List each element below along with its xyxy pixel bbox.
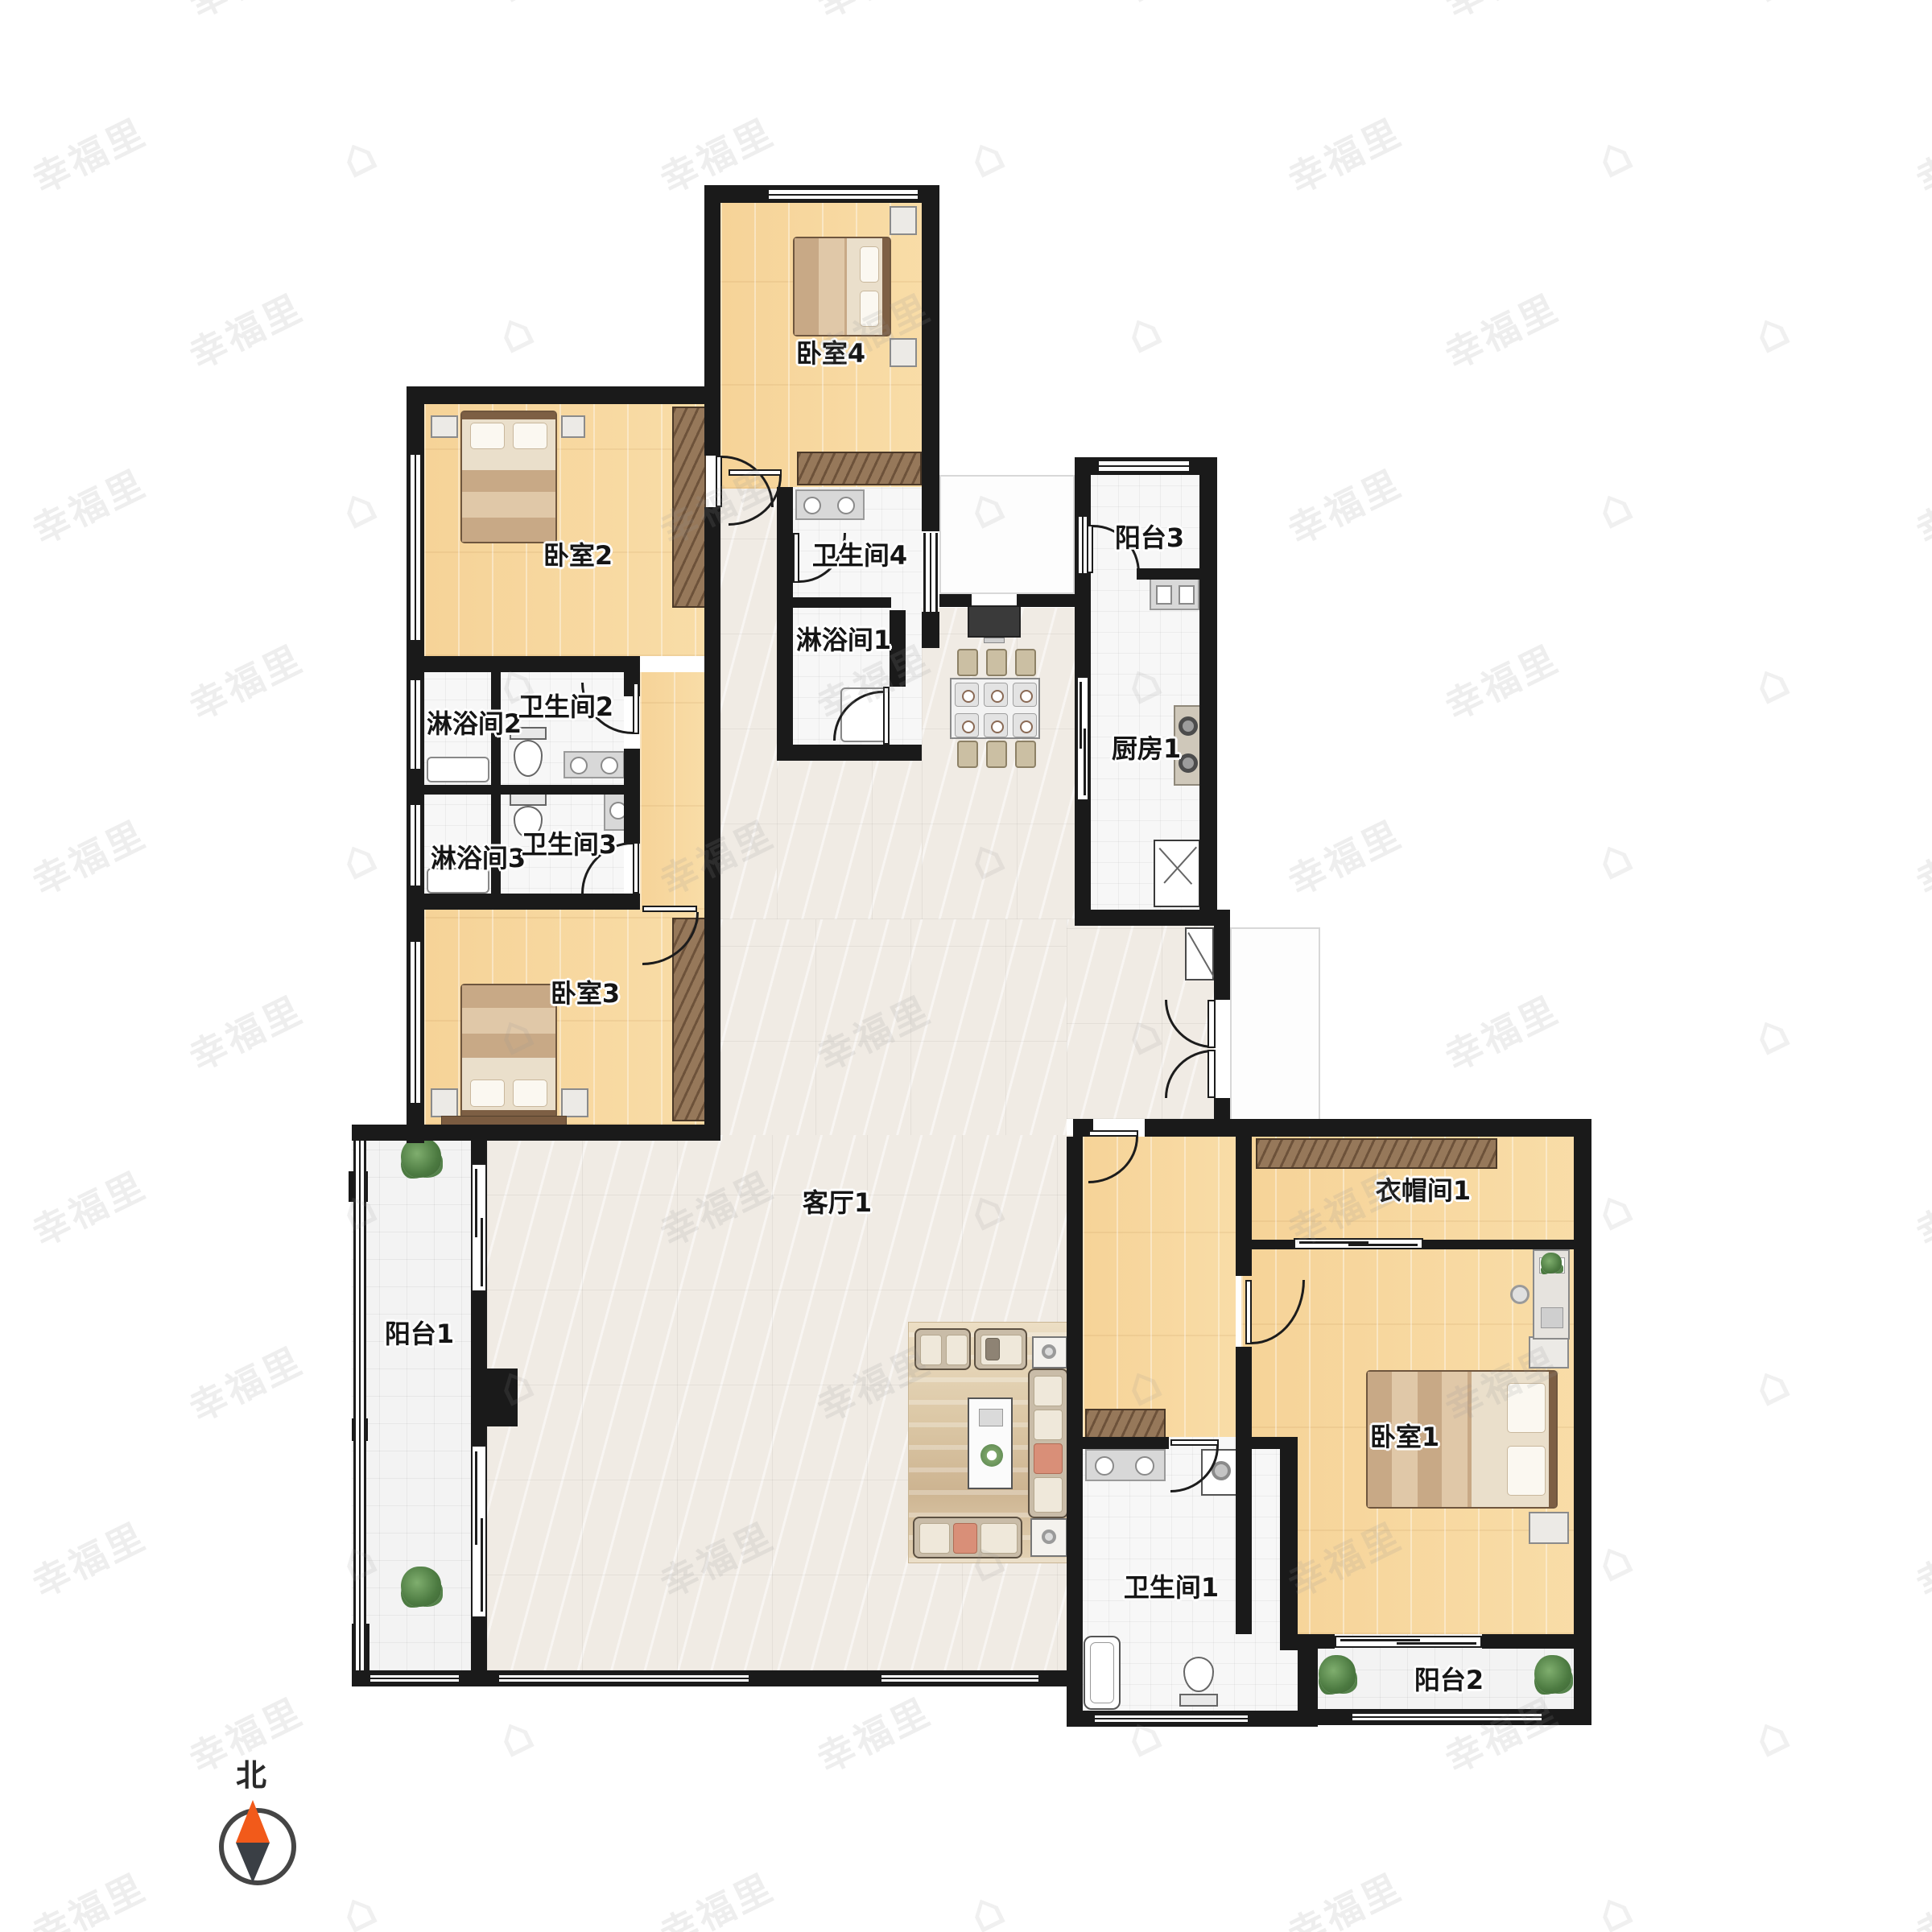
cushion	[1034, 1477, 1063, 1513]
toilet-bowl	[514, 740, 543, 777]
toilet-bowl	[1183, 1657, 1214, 1692]
burner	[1179, 753, 1198, 773]
pillow	[470, 1080, 505, 1107]
sink-basin	[570, 757, 588, 774]
sink-basin	[1156, 585, 1172, 605]
place-setting	[984, 683, 1008, 707]
wall	[1067, 1437, 1083, 1727]
wall	[777, 487, 793, 761]
kitchen-sink	[1150, 578, 1199, 610]
floor-living	[720, 919, 1067, 1137]
tv-icon	[968, 605, 1021, 638]
place-setting	[955, 713, 979, 737]
wall	[890, 610, 906, 687]
compass-needle-south-icon	[236, 1843, 270, 1883]
wall	[1574, 1652, 1591, 1725]
door-bathroom3	[633, 842, 639, 894]
place-setting	[955, 683, 979, 707]
pillow	[860, 291, 879, 327]
pillow	[513, 423, 547, 449]
pillow	[1507, 1446, 1546, 1496]
window	[408, 942, 423, 1103]
wall	[793, 597, 891, 608]
plant-icon	[1534, 1655, 1571, 1694]
door-bedroom1	[1245, 1280, 1252, 1344]
door-bathroom1	[1170, 1439, 1219, 1446]
nightstand	[561, 1088, 588, 1117]
bed-bedroom2	[460, 411, 557, 543]
window	[1095, 1713, 1248, 1724]
wall	[1199, 457, 1217, 926]
toilet-tank	[510, 793, 547, 806]
flower-vase	[980, 1444, 1003, 1467]
fridge-icon	[1154, 840, 1200, 907]
shoe-cabinet	[1185, 927, 1214, 980]
compass-north-label: 北	[236, 1751, 266, 1795]
cushion-accent	[1034, 1443, 1063, 1474]
coffee-table	[968, 1397, 1013, 1489]
bed-bedroom4	[793, 237, 891, 336]
wall	[407, 894, 640, 910]
wall	[352, 1125, 720, 1141]
sliding-door	[471, 1445, 487, 1618]
room-label-shower2: 淋浴间2	[427, 704, 522, 741]
window	[499, 1673, 749, 1684]
room-label-bedroom2: 卧室2	[543, 535, 613, 572]
window	[370, 1673, 459, 1684]
fridge-line	[1163, 847, 1197, 884]
sink-basin	[1135, 1456, 1154, 1476]
sink-basin	[601, 757, 618, 774]
room-label-bathroom2: 卫生间2	[518, 687, 613, 724]
wall	[407, 386, 720, 404]
wall	[471, 1368, 518, 1426]
pillow	[1507, 1383, 1546, 1433]
cushion	[980, 1523, 1018, 1554]
wall	[922, 612, 939, 648]
bed-blanket	[462, 985, 555, 1058]
entry-door-leaf	[1207, 1050, 1216, 1098]
dining-chair	[1015, 649, 1036, 676]
door-shower1	[883, 687, 890, 745]
single-sofa	[974, 1328, 1027, 1370]
nightstand	[890, 206, 917, 235]
window	[923, 533, 938, 612]
bed-headboard	[1549, 1372, 1556, 1507]
room-label-living1: 客厅1	[803, 1183, 872, 1220]
plant-icon	[401, 1567, 441, 1607]
wardrobe	[1085, 1409, 1166, 1439]
plant-icon	[1319, 1655, 1356, 1694]
dining-chair	[1015, 741, 1036, 768]
bathtub-icon	[1084, 1636, 1121, 1710]
lamp-icon	[1042, 1344, 1056, 1359]
wall	[704, 185, 720, 456]
room-label-bedroom4: 卧室4	[796, 333, 865, 370]
cabinet-line	[1187, 932, 1216, 980]
toilet-icon	[1179, 1657, 1218, 1707]
window	[881, 1673, 1038, 1684]
nightstand	[1529, 1336, 1569, 1368]
entry-door-leaf	[1207, 1000, 1216, 1048]
wall	[1482, 1634, 1591, 1649]
room-label-balcony1: 阳台1	[385, 1314, 454, 1351]
place-setting	[1013, 713, 1037, 737]
wall	[1423, 1240, 1574, 1249]
table-book	[979, 1409, 1003, 1426]
loveseat-sofa	[914, 1328, 971, 1370]
cushion	[919, 1523, 950, 1554]
window	[408, 680, 423, 769]
dining-chair	[986, 649, 1007, 676]
door-hallway	[1088, 1130, 1138, 1137]
door-bathroom2	[633, 683, 639, 734]
floor-hallway	[1083, 1137, 1236, 1439]
wall	[1214, 926, 1230, 1000]
room-label-balcony2: 阳台2	[1414, 1660, 1484, 1697]
nightstand	[1529, 1512, 1569, 1544]
room-label-bathroom1: 卫生间1	[1124, 1567, 1219, 1604]
sink-basin	[803, 497, 821, 514]
place-setting	[1013, 683, 1037, 707]
room-label-cloakroom1: 衣帽间1	[1376, 1170, 1471, 1207]
nightstand	[431, 1088, 458, 1117]
window	[769, 188, 918, 201]
nightstand	[431, 415, 458, 438]
sink-basin	[1179, 585, 1195, 605]
window	[408, 455, 423, 640]
bed-blanket	[795, 238, 847, 335]
sliding-door	[1335, 1636, 1482, 1648]
floor-corridor	[777, 761, 922, 919]
vanity-items	[1541, 1307, 1563, 1328]
room-label-shower3: 淋浴间3	[431, 838, 526, 875]
room-label-bathroom4: 卫生间4	[812, 535, 907, 572]
sliding-door	[1294, 1238, 1423, 1249]
bathroom4-sink	[795, 489, 865, 520]
bottom-sofa	[913, 1517, 1022, 1558]
fridge-line	[1159, 848, 1193, 885]
bathroom1-sink	[1085, 1449, 1166, 1481]
wall	[1574, 1119, 1591, 1652]
entry-foyer	[1230, 927, 1320, 1133]
compass-needle-north-icon	[236, 1800, 270, 1843]
wardrobe	[797, 452, 922, 485]
plan-graphics	[0, 0, 1932, 1932]
door-balcony3	[1087, 525, 1093, 573]
tv-stand	[984, 638, 1005, 643]
floor-vestibule	[640, 672, 704, 910]
wall	[704, 507, 720, 1135]
wall	[777, 745, 922, 761]
pillow	[513, 1080, 547, 1107]
cushion	[1034, 1376, 1063, 1406]
exterior-notch	[939, 475, 1075, 594]
wall	[1252, 1240, 1295, 1249]
door-bedroom3	[642, 906, 697, 912]
lamp-icon	[1042, 1529, 1056, 1544]
wardrobe	[1256, 1138, 1497, 1169]
room-label-balcony3: 阳台3	[1115, 518, 1184, 555]
pillow	[470, 423, 505, 449]
shower2-tray	[427, 757, 489, 782]
wall	[424, 785, 624, 795]
wall	[1075, 910, 1230, 926]
room-label-bedroom3: 卧室3	[551, 973, 620, 1010]
window	[1352, 1711, 1542, 1723]
cushion	[920, 1335, 942, 1365]
room-label-kitchen1: 厨房1	[1112, 729, 1181, 766]
sink-basin	[837, 497, 855, 514]
wall	[1017, 594, 1075, 607]
toilet-tank	[1179, 1694, 1218, 1707]
floor-plan: 卧室4 卫生间4 淋浴间1 卧室2 淋浴间2 卫生间2 淋浴间3 卫生间3 卧室…	[0, 0, 1932, 1932]
long-sofa	[1028, 1368, 1068, 1518]
side-table	[1032, 1336, 1067, 1368]
cushion-accent	[985, 1338, 1000, 1360]
nightstand	[561, 415, 585, 438]
wall	[1236, 1137, 1252, 1276]
sliding-door	[471, 1163, 487, 1292]
wall	[1145, 1119, 1591, 1137]
door-bedroom2	[716, 456, 722, 507]
door-bathroom4	[793, 533, 799, 583]
sliding-door	[1076, 676, 1089, 801]
plant-icon	[1541, 1253, 1562, 1274]
cushion-accent	[953, 1523, 977, 1554]
wall	[624, 749, 640, 844]
cushion	[1034, 1410, 1063, 1440]
sink-basin	[1095, 1456, 1114, 1476]
wall	[922, 185, 939, 531]
vanity-stool	[1510, 1285, 1529, 1304]
place-setting	[984, 713, 1008, 737]
wall	[407, 656, 640, 672]
wall	[939, 594, 972, 607]
burner	[1179, 716, 1198, 736]
door-bedroom4	[729, 469, 782, 476]
dining-chair	[957, 741, 978, 768]
side-table	[1030, 1518, 1067, 1557]
pillow	[860, 246, 879, 283]
room-label-shower1: 淋浴间1	[796, 620, 891, 657]
plant-icon	[401, 1137, 441, 1178]
window	[408, 805, 423, 885]
dining-chair	[986, 741, 1007, 768]
window	[353, 1141, 366, 1670]
bed-bedroom3	[460, 984, 557, 1119]
room-label-bedroom1: 卧室1	[1370, 1417, 1439, 1454]
wall	[1280, 1437, 1298, 1650]
bed-blanket	[462, 470, 555, 542]
dining-chair	[957, 649, 978, 676]
wall	[1137, 568, 1199, 580]
cushion	[946, 1335, 968, 1365]
bed-headboard	[462, 412, 555, 419]
wall	[1067, 1437, 1169, 1449]
wall	[1067, 1137, 1083, 1437]
wall	[1236, 1347, 1252, 1634]
room-label-bathroom3: 卫生间3	[522, 824, 617, 861]
nightstand	[890, 338, 917, 367]
window	[1099, 459, 1189, 473]
bathroom2-sink	[563, 751, 625, 778]
wardrobe	[672, 407, 706, 608]
bed-headboard	[882, 238, 890, 335]
